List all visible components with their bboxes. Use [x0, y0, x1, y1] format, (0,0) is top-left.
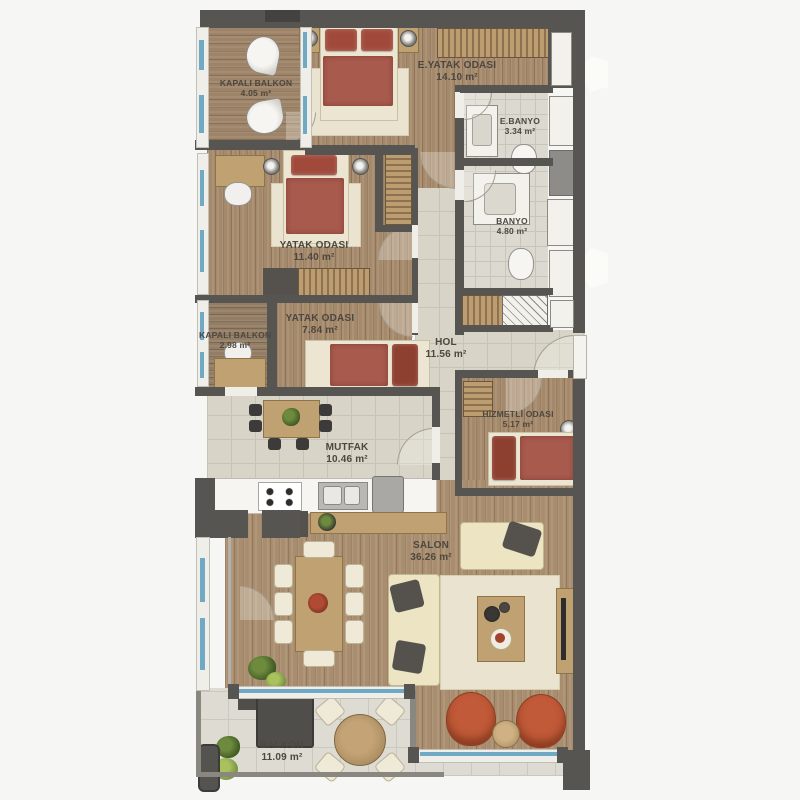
- duvet: [323, 56, 393, 106]
- wall-hizmetli-left: [455, 378, 462, 490]
- window: [200, 230, 204, 272]
- dining-chair: [274, 592, 293, 616]
- dining-chair: [303, 541, 335, 558]
- window: [199, 40, 204, 70]
- wall-banyo-top: [455, 158, 553, 166]
- decor: [484, 606, 500, 622]
- sink-bowl: [323, 486, 342, 505]
- dining-chair: [274, 564, 293, 588]
- duvet: [520, 436, 574, 480]
- kitchen-chair: [296, 438, 309, 450]
- dining-chair: [345, 620, 364, 644]
- kitchen-chair: [249, 420, 262, 432]
- duvet: [286, 178, 344, 234]
- desk-chair: [224, 182, 252, 206]
- wall: [375, 148, 383, 232]
- door-gap: [455, 170, 464, 200]
- label-hol: HOL11.56 m²: [415, 337, 477, 361]
- door-gap: [412, 225, 418, 258]
- window-post: [228, 684, 239, 699]
- window: [200, 170, 204, 206]
- balcony-table: [334, 714, 386, 766]
- window: [199, 95, 204, 133]
- label-salon: SALON36.26 m²: [399, 540, 463, 564]
- window: [238, 689, 408, 693]
- pillow: [325, 29, 357, 51]
- dining-chair: [345, 592, 364, 616]
- duvet: [330, 344, 388, 386]
- wall: [305, 145, 415, 155]
- wall-right-lower: [573, 377, 585, 757]
- kitchen-chair: [249, 404, 262, 416]
- dining-chair: [345, 564, 364, 588]
- stairs-closet: [385, 153, 412, 225]
- pillow: [291, 155, 337, 175]
- wall-block: [262, 510, 300, 538]
- window: [303, 32, 307, 68]
- wall: [195, 140, 310, 150]
- dining-chair: [274, 620, 293, 644]
- column: [198, 744, 220, 792]
- wall-top-inset: [265, 10, 300, 22]
- label-kapali-balkon-ust: KAPALI BALKON4.05 m²: [206, 78, 306, 98]
- pillow: [492, 436, 516, 480]
- centerpiece: [308, 593, 328, 613]
- label-yatak-odasi-784: YATAK ODASI7.84 m²: [281, 313, 359, 337]
- window: [420, 752, 560, 756]
- sink-bowl: [344, 486, 360, 505]
- kitchen-chair: [319, 404, 332, 416]
- window: [303, 96, 307, 134]
- toilet: [508, 248, 534, 280]
- window-post: [408, 747, 419, 763]
- lamp: [263, 158, 280, 175]
- wardrobe: [298, 268, 370, 298]
- window: [200, 558, 205, 602]
- armchair: [446, 692, 496, 746]
- label-kapali-balkon-alt: KAPALI BALKON2.98 m²: [199, 330, 271, 350]
- table-plant: [282, 408, 300, 426]
- window: [200, 618, 205, 670]
- floor-plan: KAPALI BALKON4.05 m² E.YATAK ODASI14.10 …: [0, 0, 800, 800]
- label-e-banyo: E.BANYO3.34 m²: [489, 116, 551, 136]
- label-hizmetli-odasi: HİZMETLİ ODASI5.17 m²: [470, 409, 566, 429]
- shaft: [549, 150, 574, 196]
- wall: [195, 295, 412, 303]
- window-post: [404, 684, 415, 699]
- label-balkon: BALKON11.09 m²: [242, 740, 322, 764]
- armchair: [516, 694, 566, 748]
- desk: [214, 358, 266, 388]
- wall: [375, 225, 412, 232]
- door-gap: [432, 427, 440, 463]
- balkon-edge-left: [196, 690, 201, 776]
- label-e-yatak-odasi: E.YATAK ODASI14.10 m²: [412, 60, 502, 84]
- wall: [455, 325, 553, 332]
- window-inner-line: [228, 537, 231, 689]
- balkon-edge-bottom: [196, 772, 444, 777]
- wall-salon-topleft: [195, 510, 248, 538]
- lamp: [400, 30, 417, 47]
- shaft: [547, 199, 574, 246]
- door-gap: [455, 92, 464, 118]
- wardrobe: [437, 28, 549, 58]
- wall-top: [200, 10, 585, 28]
- side-table: [492, 720, 520, 748]
- window-post: [557, 747, 568, 763]
- window: [200, 352, 204, 378]
- door-gap: [412, 303, 418, 333]
- kitchen-chair: [319, 420, 332, 432]
- wall-right-upper: [573, 10, 585, 333]
- label-mutfak: MUTFAK10.46 m²: [316, 442, 378, 466]
- throw-blanket: [392, 640, 427, 675]
- wall-banyo-bottom: [455, 288, 553, 295]
- stove: [258, 482, 302, 511]
- shower: [549, 96, 575, 146]
- wall-hizmetli-bottom: [455, 488, 585, 496]
- cabinet: [263, 268, 298, 296]
- label-banyo: BANYO4.80 m²: [481, 216, 543, 236]
- entrance-door-leaf: [573, 335, 587, 379]
- candle: [495, 633, 505, 643]
- kitchen-chair: [268, 438, 281, 450]
- decor-bowl: [318, 513, 336, 531]
- shaft: [550, 300, 574, 328]
- wall-ebanyo-top: [460, 85, 553, 93]
- shaft: [551, 32, 572, 86]
- door-gap: [538, 370, 568, 378]
- pillow: [361, 29, 393, 51]
- door-gap: [225, 387, 257, 396]
- dining-chair: [303, 650, 335, 667]
- tv: [561, 598, 566, 660]
- fridge: [372, 476, 404, 513]
- label-yatak-odasi-1140: YATAK ODASI11.40 m²: [275, 240, 353, 264]
- decor: [499, 602, 510, 613]
- lamp: [352, 158, 369, 175]
